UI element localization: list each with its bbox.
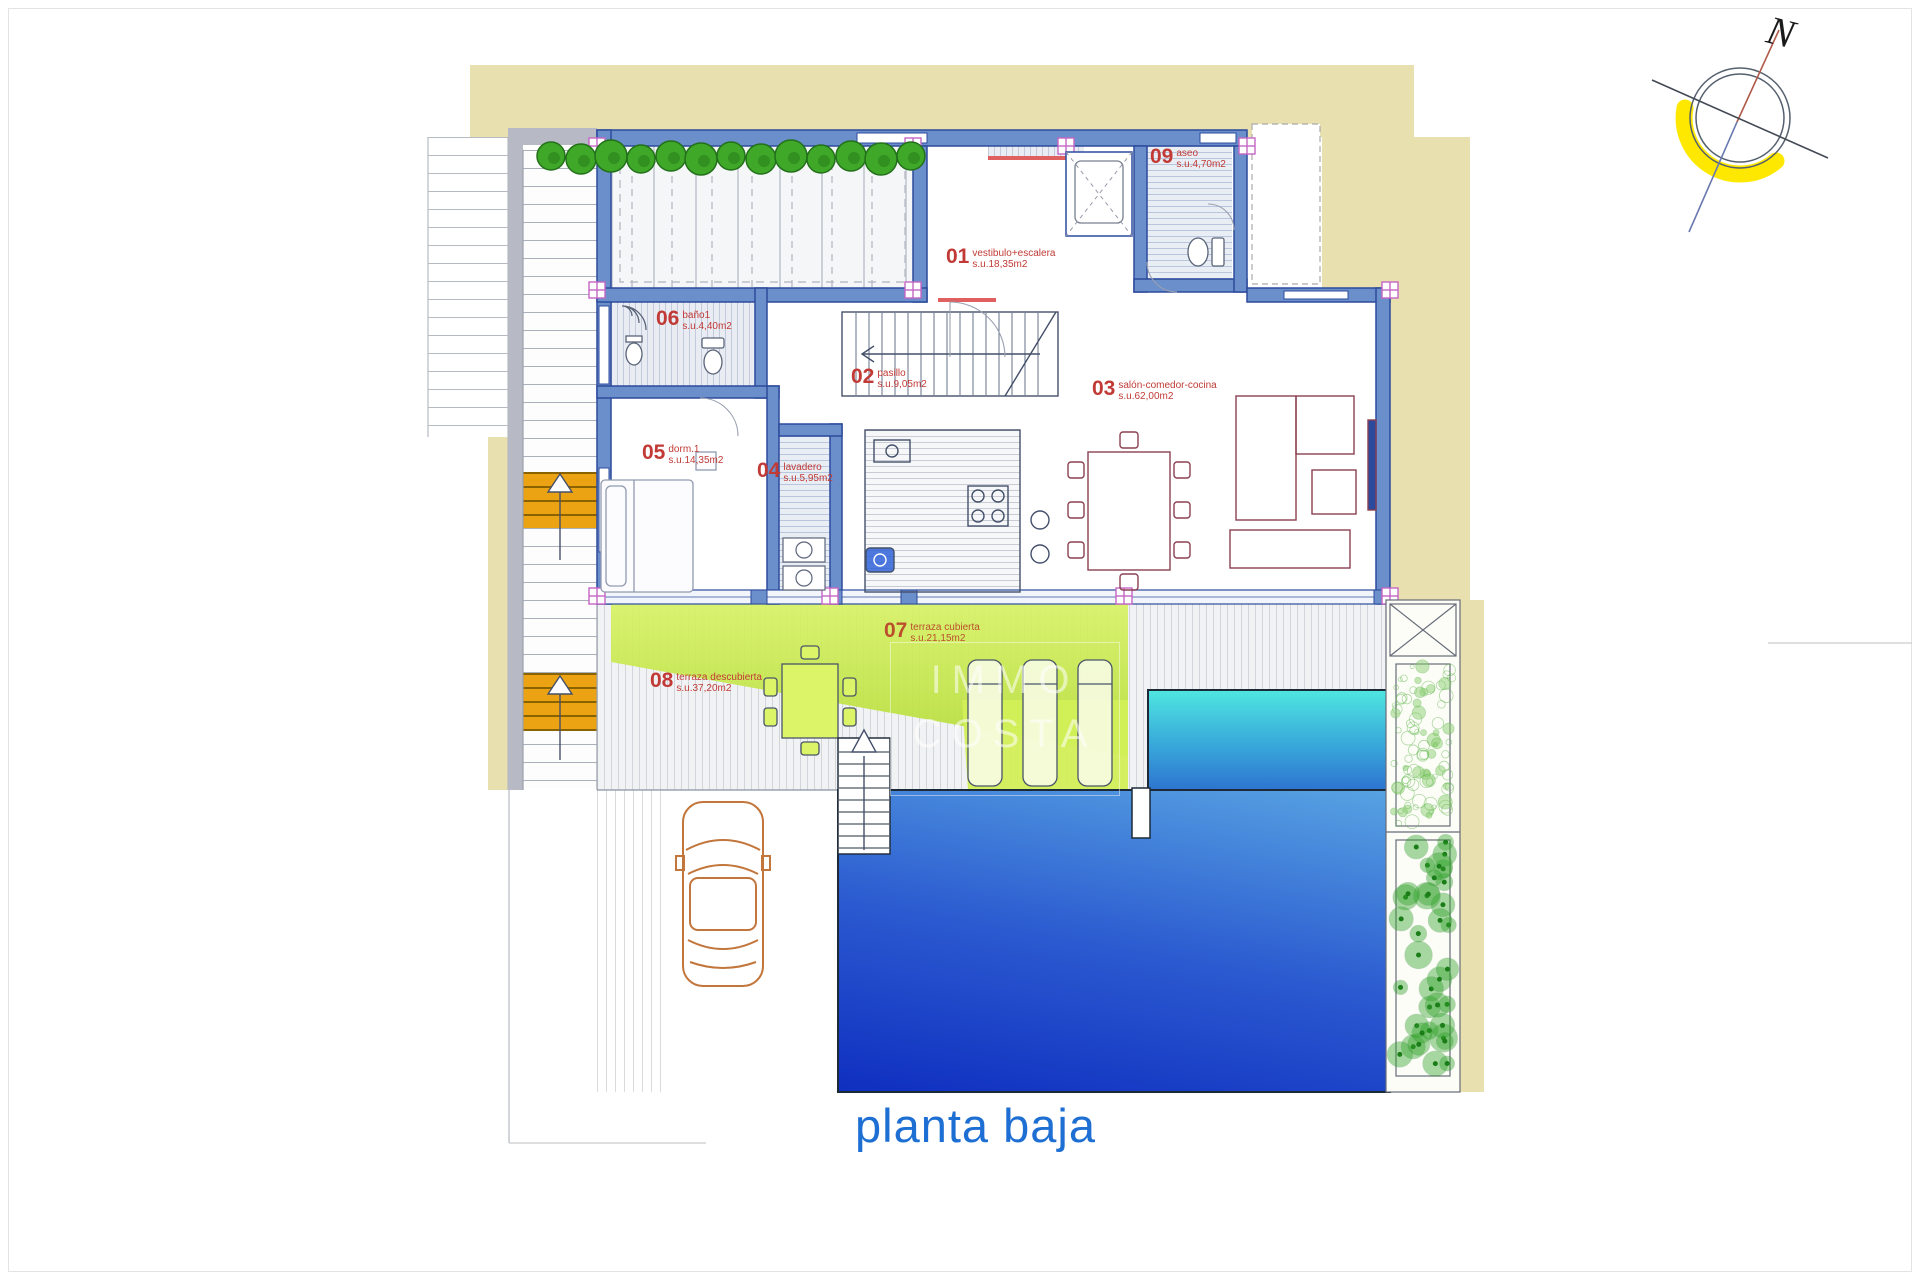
bed — [601, 452, 716, 592]
room-label-terraza-cubierta: 07 terraza cubierta s.u.21,15m2 — [884, 622, 980, 644]
room-label-bano1: 06 baño1 s.u.4,40m2 — [656, 310, 732, 332]
sofa — [1236, 396, 1296, 520]
kitchen-island — [865, 430, 1049, 592]
room-label-dorm1: 05 dorm.1 s.u.14,35m2 — [642, 444, 723, 466]
room-area: s.u.9,05m2 — [877, 379, 926, 390]
compass-north-label: N — [1761, 7, 1801, 58]
sink-icon — [626, 343, 642, 365]
room-area: s.u.37,20m2 — [676, 683, 762, 694]
room-name: vestibulo+escalera — [972, 248, 1055, 259]
tv-sideboard — [1368, 420, 1376, 510]
pool-step-corner — [1132, 788, 1150, 838]
room-number: 09 — [1150, 148, 1173, 166]
room-number: 08 — [650, 672, 673, 690]
watermark-line2: COSTA — [891, 707, 1119, 761]
compass-rose: N — [1652, 7, 1828, 232]
plot-dashed-rect — [1252, 124, 1320, 284]
room-name: dorm.1 — [668, 444, 723, 455]
room-area: s.u.21,15m2 — [910, 633, 979, 644]
room-label-aseo: 09 aseo s.u.4,70m2 — [1150, 148, 1226, 170]
toilet-aseo-icon — [1188, 238, 1224, 266]
bar-stool — [1031, 545, 1049, 563]
room-number: 04 — [757, 462, 780, 480]
room-number: 03 — [1092, 380, 1115, 398]
room-name: terraza descubierta — [676, 672, 762, 683]
room-name: lavadero — [783, 462, 832, 473]
room-number: 06 — [656, 310, 679, 328]
bed-pillow — [606, 486, 626, 586]
room-area: s.u.18,35m2 — [972, 259, 1055, 270]
room-number: 05 — [642, 444, 665, 462]
elevator — [1066, 152, 1132, 236]
room-label-terraza-descubierta: 08 terraza descubierta s.u.37,20m2 — [650, 672, 762, 694]
room-number: 02 — [851, 368, 874, 386]
blue-appliance — [866, 548, 894, 572]
room-name: baño1 — [682, 310, 731, 321]
room-name: pasillo — [877, 368, 926, 379]
exterior-stair-arrows — [548, 474, 572, 760]
room-area: s.u.62,00m2 — [1118, 391, 1216, 402]
room-label-pasillo: 02 pasillo s.u.9,05m2 — [851, 368, 927, 390]
washer-icons — [783, 538, 825, 590]
coffee-table — [1312, 470, 1356, 514]
room-area: s.u.4,70m2 — [1176, 159, 1225, 170]
dining-chairs — [1068, 432, 1190, 590]
floor-plan-page: N 01 vestibulo+escalera s.u.18,35m2 02 p… — [0, 0, 1920, 1280]
sofa-chaise — [1296, 396, 1354, 454]
shower-spray-icon — [622, 306, 646, 330]
dining-table — [1088, 452, 1170, 570]
room-label-lavadero: 04 lavadero s.u.5,95m2 — [757, 462, 833, 484]
room-label-salon-comedor-cocina: 03 salón-comedor-cocina s.u.62,00m2 — [1092, 380, 1217, 402]
room-number: 07 — [884, 622, 907, 640]
pool-stairs — [838, 730, 890, 854]
room-name: terraza cubierta — [910, 622, 979, 633]
room-area: s.u.4,40m2 — [682, 321, 731, 332]
toilet-bano-icon — [704, 350, 722, 374]
watermark-line1: IMMO — [891, 653, 1119, 707]
outdoor-table — [782, 664, 838, 738]
room-number: 01 — [946, 248, 969, 266]
room-area: s.u.14,35m2 — [668, 455, 723, 466]
room-label-vestibulo-escalera: 01 vestibulo+escalera s.u.18,35m2 — [946, 248, 1055, 270]
compass-yellow-crescent — [1684, 108, 1776, 174]
room-name: aseo — [1176, 148, 1225, 159]
watermark: IMMO COSTA — [890, 642, 1120, 796]
plan-title: planta baja — [855, 1098, 1096, 1153]
salon-furniture — [1068, 396, 1376, 590]
room-area: s.u.5,95m2 — [783, 473, 832, 484]
kitchen-sink — [874, 440, 910, 462]
car-icon — [676, 802, 770, 986]
room-name: salón-comedor-cocina — [1118, 380, 1216, 391]
sofa-two-seat — [1230, 530, 1350, 568]
bar-stool — [1031, 511, 1049, 529]
